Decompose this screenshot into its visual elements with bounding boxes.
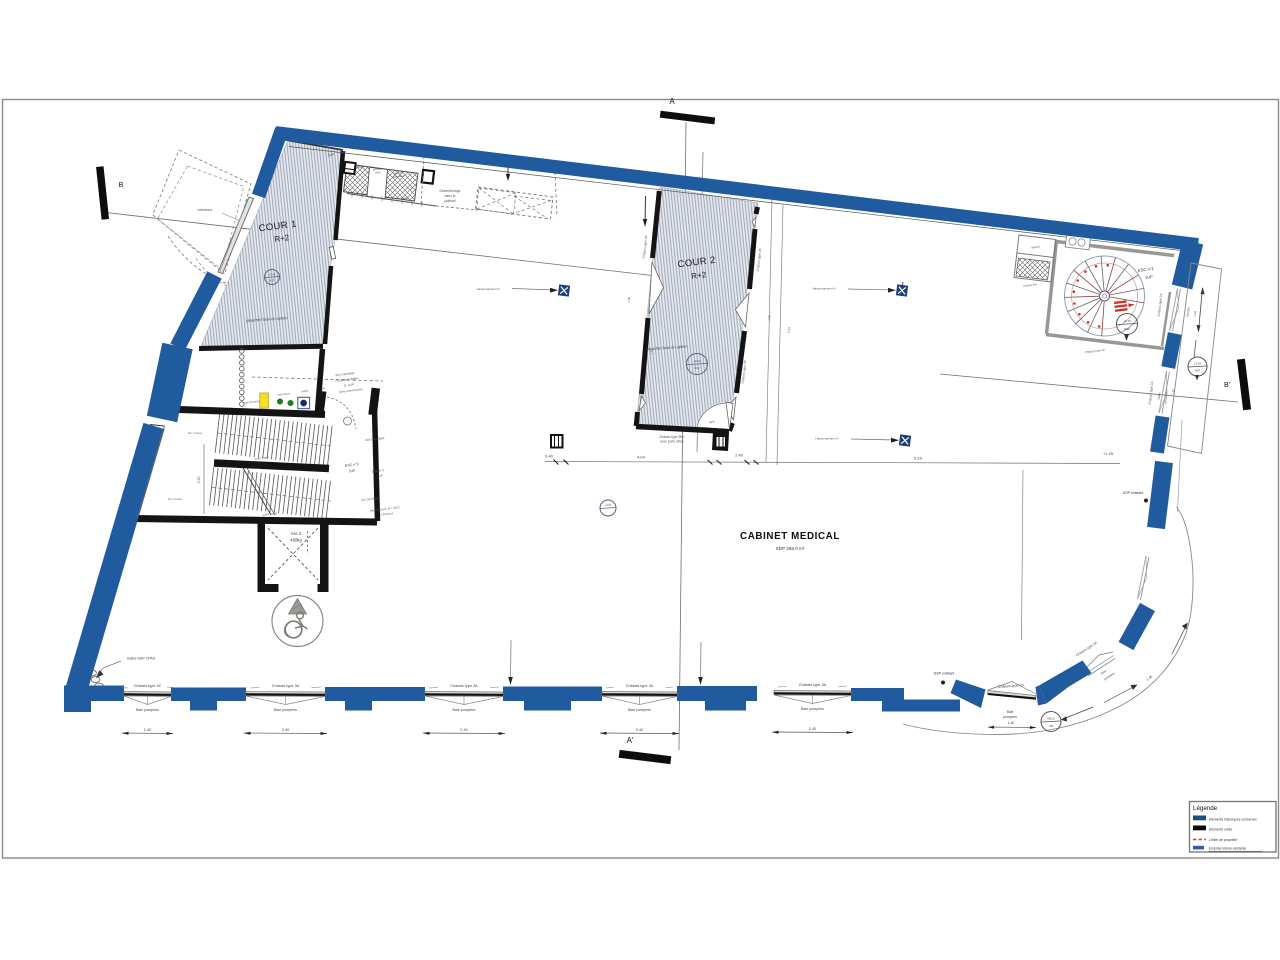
svg-text:avec porte vitrée: avec porte vitrée xyxy=(660,440,684,444)
svg-text:A: A xyxy=(669,97,675,106)
svg-text:DEP: DEP xyxy=(709,420,715,425)
svg-text:Baie pompiers: Baie pompiers xyxy=(628,708,651,712)
svg-text:Légende: Légende xyxy=(1193,805,1218,812)
svg-text:Rejet: Rejet xyxy=(356,165,363,170)
svg-text:1.10: 1.10 xyxy=(649,348,654,355)
svg-text:NGF: NGF xyxy=(694,366,700,370)
svg-text:Haussmannien N: Haussmannien N xyxy=(815,437,838,441)
svg-text:Baie pompiers: Baie pompiers xyxy=(453,708,476,712)
svg-text:2.40: 2.40 xyxy=(282,728,289,732)
svg-text:Baie pompiers: Baie pompiers xyxy=(801,707,824,711)
svg-text:Haussmannien N: Haussmannien N xyxy=(476,287,499,291)
svg-text:450kg: 450kg xyxy=(290,538,302,543)
svg-text:Châssis type 3A: Châssis type 3A xyxy=(450,684,478,688)
svg-text:Eléments historiques conservés: Eléments historiques conservés xyxy=(1209,817,1257,821)
svg-text:1.46: 1.46 xyxy=(1193,310,1198,317)
svg-text:Châssis type 3A: Châssis type 3A xyxy=(272,684,300,688)
svg-text:B: B xyxy=(119,182,124,189)
svg-text:0.40: 0.40 xyxy=(545,454,554,459)
svg-text:+0.55: +0.55 xyxy=(1194,362,1202,366)
svg-text:Châssis type 3C: Châssis type 3C xyxy=(134,684,162,688)
svg-text:1.40: 1.40 xyxy=(144,728,151,732)
svg-text:pompiers: pompiers xyxy=(1003,715,1017,719)
svg-text:Ver. N cave: Ver. N cave xyxy=(168,497,183,501)
svg-text:Emprise toiture existante: Emprise toiture existante xyxy=(1209,846,1246,850)
svg-text:+7.96: +7.96 xyxy=(269,273,276,277)
svg-text:Eléments créés: Eléments créés xyxy=(1209,827,1233,831)
svg-text:Châssis type 3A: Châssis type 3A xyxy=(799,683,827,687)
svg-text:R+2: R+2 xyxy=(691,270,707,281)
svg-text:Désenfumage: Désenfumage xyxy=(439,189,460,193)
svg-text:5.15: 5.15 xyxy=(787,326,792,333)
svg-text:CABINET MEDICAL: CABINET MEDICAL xyxy=(740,531,840,542)
svg-text:VELO: VELO xyxy=(1047,717,1056,721)
svg-text:Ver. N cave: Ver. N cave xyxy=(188,431,203,435)
svg-text:1.10: 1.10 xyxy=(767,314,772,321)
svg-text:2.40: 2.40 xyxy=(460,728,467,732)
svg-text:d'air: d'air xyxy=(375,170,381,175)
svg-text:2UP: 2UP xyxy=(377,474,383,479)
svg-text:1.59: 1.59 xyxy=(627,296,632,303)
svg-text:Baie pompiers: Baie pompiers xyxy=(136,708,159,712)
svg-text:DSP existant: DSP existant xyxy=(934,672,955,676)
svg-text:+0.00: +0.00 xyxy=(605,503,612,507)
svg-text:Baie: Baie xyxy=(1007,710,1014,714)
svg-text:Baie pompiers: Baie pompiers xyxy=(274,708,297,712)
svg-text:3.20: 3.20 xyxy=(197,477,201,484)
svg-text:5.15: 5.15 xyxy=(914,456,923,461)
svg-text:+8.10: +8.10 xyxy=(693,359,701,363)
svg-text:1.40: 1.40 xyxy=(1008,721,1015,725)
svg-text:DSP existant: DSP existant xyxy=(1123,491,1144,495)
svg-text:1UP: 1UP xyxy=(1145,274,1154,280)
svg-text:B': B' xyxy=(1224,382,1230,389)
svg-text:SDP 268.0 m²: SDP 268.0 m² xyxy=(776,546,805,551)
svg-text:Châssis type 3B.1: Châssis type 3B.1 xyxy=(659,435,685,439)
svg-text:R+2: R+2 xyxy=(274,233,290,244)
svg-text:4.04: 4.04 xyxy=(637,455,646,460)
svg-text:plafond: plafond xyxy=(444,199,455,203)
svg-text:dans le: dans le xyxy=(445,194,456,198)
svg-text:citerneaux: citerneaux xyxy=(198,208,213,212)
svg-text:Limite de propriété: Limite de propriété xyxy=(1209,838,1237,842)
svg-text:2.40: 2.40 xyxy=(636,728,643,732)
svg-text:NGF: NGF xyxy=(1124,327,1130,331)
svg-text:2.40: 2.40 xyxy=(809,727,816,731)
svg-text:+1.25: +1.25 xyxy=(1103,451,1114,456)
svg-text:Haussmannien N: Haussmannien N xyxy=(812,287,835,291)
svg-text:Châssis type 3A: Châssis type 3A xyxy=(626,684,654,688)
svg-text:2.40: 2.40 xyxy=(735,453,744,458)
svg-text:Baies: Baies xyxy=(1157,392,1162,400)
svg-text:Gaine NSP CPAS: Gaine NSP CPAS xyxy=(127,657,156,661)
svg-text:+0.70: +0.70 xyxy=(1123,319,1131,323)
svg-text:Asc 2: Asc 2 xyxy=(291,531,302,536)
svg-text:NGF: NGF xyxy=(269,280,275,283)
svg-text:A': A' xyxy=(627,736,634,745)
svg-text:NGF: NGF xyxy=(1195,369,1201,373)
